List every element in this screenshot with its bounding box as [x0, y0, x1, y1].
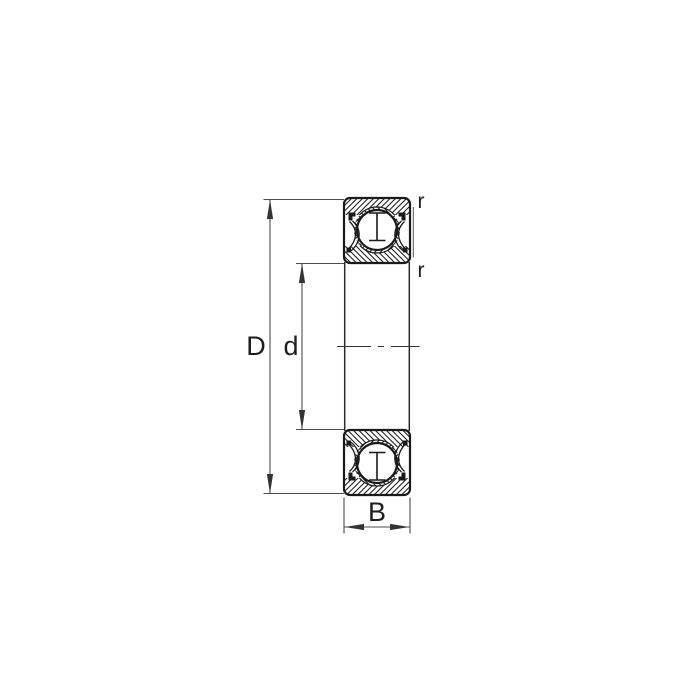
D-arrow-up [267, 200, 273, 220]
dimension-d-group [296, 264, 344, 430]
B-arrow-left [345, 524, 364, 530]
chamfer-radius-bottom-label: r [418, 259, 425, 282]
bearing-drawing-canvas: D d B r r [0, 0, 700, 700]
chamfer-radius-top-label: r [418, 190, 425, 213]
B-arrow-right [390, 524, 409, 530]
outer-diameter-label: D [246, 331, 266, 361]
bearing-section-diagram: D d B r r [0, 0, 700, 700]
bore-diameter-label: d [283, 331, 298, 361]
d-arrow-up [299, 264, 305, 284]
width-label: B [368, 497, 386, 527]
bearing-top-section [344, 198, 410, 263]
d-arrow-down [299, 410, 305, 430]
bearing-bottom-section [344, 430, 410, 495]
D-arrow-down [267, 474, 273, 494]
dimension-D-group [264, 200, 345, 494]
